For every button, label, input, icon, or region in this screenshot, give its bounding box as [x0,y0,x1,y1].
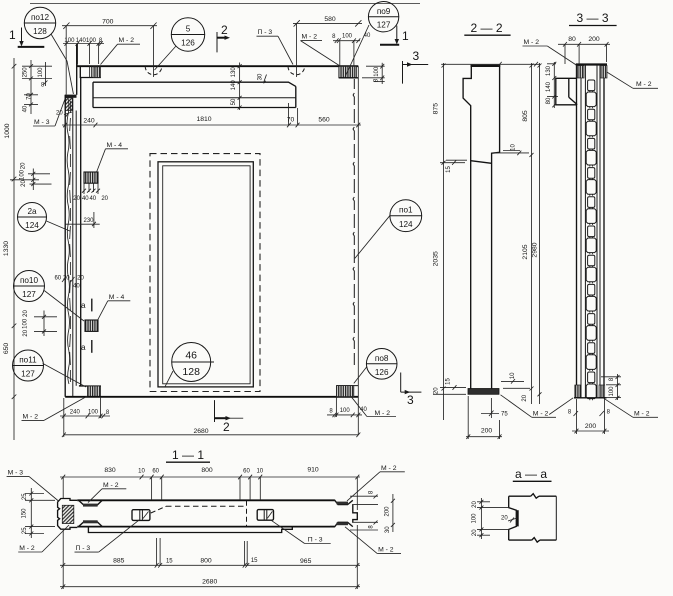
svg-text:80: 80 [546,97,552,104]
svg-text:830: 830 [104,467,116,474]
svg-text:25: 25 [22,527,28,534]
svg-text:70: 70 [27,93,33,100]
svg-text:2680: 2680 [193,428,208,435]
svg-text:1: 1 [9,28,16,42]
svg-text:60: 60 [54,276,61,282]
svg-text:М - 2: М - 2 [381,465,397,472]
svg-text:60: 60 [243,469,250,475]
svg-text:15: 15 [446,378,452,385]
svg-text:80: 80 [568,36,576,43]
svg-text:885: 885 [113,558,125,565]
svg-text:127: 127 [21,370,35,379]
svg-text:40: 40 [82,196,89,202]
svg-text:100: 100 [340,408,351,414]
svg-text:140: 140 [231,80,237,91]
svg-text:М - 2: М - 2 [375,410,391,417]
svg-text:1810: 1810 [196,116,211,123]
svg-text:2a: 2a [27,207,37,216]
svg-text:М - 3: М - 3 [34,119,50,126]
svg-text:15: 15 [251,558,258,564]
svg-text:910: 910 [307,467,319,474]
svg-text:70: 70 [287,117,295,124]
svg-text:2680: 2680 [202,579,217,586]
svg-text:200: 200 [385,506,391,517]
svg-text:100: 100 [342,34,353,40]
svg-text:10: 10 [256,469,263,475]
svg-text:по11: по11 [19,356,37,365]
svg-text:100: 100 [86,38,97,44]
svg-text:2: 2 [221,23,228,37]
svg-text:20: 20 [101,196,108,202]
svg-text:130: 130 [231,67,237,78]
svg-text:М - 2: М - 2 [119,37,135,44]
svg-text:П - 3: П - 3 [308,537,323,544]
svg-text:a: a [81,301,86,310]
svg-text:20: 20 [472,501,478,508]
svg-text:2105: 2105 [522,244,529,259]
svg-text:a — a: a — a [515,467,547,481]
svg-text:М - 2: М - 2 [378,547,394,554]
svg-text:10: 10 [510,372,516,379]
svg-text:2: 2 [223,420,230,434]
svg-text:805: 805 [522,110,529,122]
svg-text:М - 2: М - 2 [19,545,35,552]
svg-text:20: 20 [73,196,80,202]
svg-text:800: 800 [200,558,212,565]
svg-text:10: 10 [138,469,145,475]
svg-text:10: 10 [511,144,517,151]
svg-text:40: 40 [360,407,367,413]
svg-text:20: 20 [501,516,508,522]
svg-text:30: 30 [258,73,264,80]
svg-text:46: 46 [185,350,197,362]
svg-text:75: 75 [501,412,508,418]
svg-text:20: 20 [433,387,439,394]
svg-text:М - 2: М - 2 [103,482,119,489]
svg-text:15: 15 [446,166,452,173]
svg-text:15: 15 [166,559,173,565]
svg-text:по12: по12 [31,13,50,22]
svg-text:40: 40 [23,105,29,112]
svg-text:М - 2: М - 2 [636,81,652,88]
svg-text:3: 3 [407,393,414,407]
svg-text:М - 2: М - 2 [634,410,650,417]
svg-text:100: 100 [64,38,75,44]
svg-text:20: 20 [522,394,528,401]
svg-text:20: 20 [23,329,29,336]
svg-text:40: 40 [73,284,80,290]
svg-text:М - 4: М - 4 [107,142,123,149]
svg-text:5: 5 [186,25,191,34]
svg-text:126: 126 [181,39,195,48]
svg-text:20: 20 [23,310,29,317]
svg-text:60: 60 [152,469,159,475]
svg-text:М - 2: М - 2 [524,39,540,46]
svg-text:20: 20 [77,276,84,282]
svg-text:М - 2: М - 2 [23,414,39,421]
svg-text:50: 50 [231,98,237,105]
svg-text:250: 250 [23,67,29,78]
svg-text:П - 3: П - 3 [76,545,91,552]
svg-text:1: 1 [402,29,409,43]
svg-text:140: 140 [76,38,87,44]
svg-text:200: 200 [585,423,597,430]
svg-text:по1: по1 [399,206,413,215]
svg-text:100: 100 [20,169,26,180]
svg-text:126: 126 [375,368,389,377]
svg-text:3 — 3: 3 — 3 [576,11,608,25]
svg-text:М - 3: М - 3 [8,470,24,477]
svg-text:100: 100 [472,513,478,524]
svg-text:100: 100 [374,66,380,77]
svg-text:124: 124 [399,220,413,229]
svg-text:100: 100 [38,67,44,78]
svg-text:1 — 1: 1 — 1 [172,448,204,462]
svg-text:25: 25 [22,493,28,500]
svg-text:580: 580 [324,16,336,23]
svg-text:240: 240 [83,118,95,125]
svg-text:200: 200 [588,36,600,43]
svg-text:М - 2: М - 2 [302,34,318,41]
svg-text:3: 3 [413,49,420,63]
svg-text:2 — 2: 2 — 2 [470,21,502,35]
svg-text:128: 128 [33,27,47,36]
svg-text:130: 130 [546,65,552,76]
svg-text:100: 100 [88,410,99,416]
svg-text:100: 100 [23,318,29,329]
svg-text:128: 128 [182,366,200,378]
svg-text:40: 40 [89,196,96,202]
svg-text:1000: 1000 [4,123,11,138]
svg-text:по9: по9 [377,7,391,16]
svg-text:по8: по8 [375,354,389,363]
svg-text:20: 20 [472,529,478,536]
svg-text:124: 124 [25,221,39,230]
svg-text:240: 240 [70,410,81,416]
svg-text:20: 20 [21,162,27,169]
svg-text:М - 4: М - 4 [109,294,125,301]
svg-text:20: 20 [21,180,27,187]
svg-text:a: a [81,343,86,352]
svg-text:2980: 2980 [531,242,538,257]
svg-text:875: 875 [433,103,440,115]
svg-text:П - 3: П - 3 [258,29,273,36]
svg-text:1330: 1330 [3,241,10,256]
svg-text:230: 230 [83,218,94,224]
svg-text:150: 150 [22,508,28,519]
svg-text:127: 127 [377,21,391,30]
svg-text:700: 700 [102,19,114,26]
svg-text:20: 20 [63,276,70,282]
svg-text:650: 650 [3,343,10,355]
svg-text:200: 200 [481,428,493,435]
svg-text:по10: по10 [20,276,39,285]
svg-text:965: 965 [300,558,312,565]
svg-text:140: 140 [546,81,552,92]
svg-text:127: 127 [22,290,36,299]
svg-text:100: 100 [609,386,615,397]
svg-text:800: 800 [201,467,213,474]
svg-text:М - 2: М - 2 [533,410,549,417]
svg-text:2035: 2035 [432,251,439,266]
svg-text:560: 560 [318,117,330,124]
svg-text:30: 30 [385,526,391,533]
